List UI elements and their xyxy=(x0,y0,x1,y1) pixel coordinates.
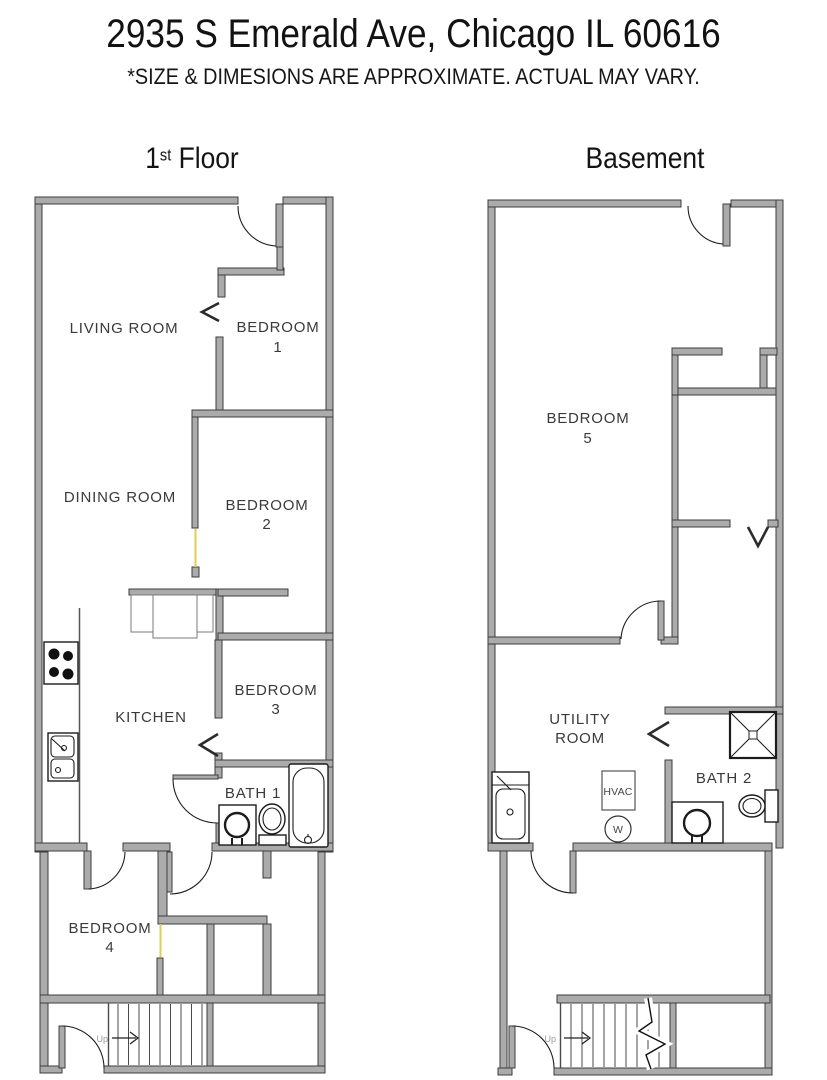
first-floor-stairs xyxy=(109,1003,203,1066)
hvac-label: HVAC xyxy=(603,786,632,798)
stove-icon xyxy=(44,642,78,684)
kitchen-label: KITCHEN xyxy=(115,709,186,726)
hall-door-arc xyxy=(170,852,212,894)
hall-door-leaf xyxy=(167,852,172,892)
bedroom1-label: BEDROOM xyxy=(236,319,319,336)
washer-icon: W xyxy=(605,816,631,842)
bath1-tub-icon xyxy=(289,764,328,847)
washer-label: W xyxy=(613,824,623,836)
bedroom4-number: 4 xyxy=(105,939,114,956)
bath2-door-icon xyxy=(649,722,669,746)
bedroom4-label: BEDROOM xyxy=(68,920,151,937)
bath1-toilet-icon xyxy=(259,804,286,845)
living-room-label: LIVING ROOM xyxy=(70,320,179,337)
basement-walls xyxy=(488,200,783,1075)
shower-icon xyxy=(730,712,776,758)
bath1-door-leaf xyxy=(173,775,218,779)
landing-door-leaf xyxy=(59,1026,65,1068)
utility-room-label: UTILITY xyxy=(549,711,610,728)
floor-plan-page: 2935 S Emerald Ave, Chicago IL 60616 *SI… xyxy=(0,0,827,1080)
bedroom3-number: 3 xyxy=(271,701,280,718)
kitchen-cabinets xyxy=(131,595,213,638)
entry-door-leaf xyxy=(276,204,283,247)
landing-door-arc xyxy=(62,1026,104,1068)
bedroom1-door-icon xyxy=(202,303,219,321)
bath1-sink-icon xyxy=(219,805,256,845)
bedroom5-label: BEDROOM xyxy=(546,410,629,427)
bedroom2-label: BEDROOM xyxy=(225,497,308,514)
bath1-label: BATH 1 xyxy=(225,785,281,802)
utility-fixtures: HVAC W xyxy=(492,771,635,843)
basement-room-labels: BEDROOM 5 UTILITY ROOM BATH 2 Up xyxy=(544,410,752,1044)
bedroom2-number: 2 xyxy=(262,516,271,533)
bedroom4-door-arc xyxy=(88,852,125,889)
basement-stairs-up-label: Up xyxy=(544,1034,556,1044)
utility-room-label-2: ROOM xyxy=(555,730,605,747)
hvac-unit: HVAC xyxy=(602,771,635,810)
bath2-sink-icon xyxy=(672,802,723,843)
basement-entry-door-arc xyxy=(688,206,723,244)
bedroom4-door-leaf xyxy=(84,851,91,889)
bedroom5-number: 5 xyxy=(583,430,592,447)
basement-doors xyxy=(509,204,768,1068)
basement-landing-door-leaf xyxy=(509,1026,515,1068)
stairs-up-label: Up xyxy=(96,1034,108,1044)
dining-room-label: DINING ROOM xyxy=(64,489,176,506)
bath2-toilet-icon xyxy=(739,790,778,822)
bath1-door-arc xyxy=(173,779,217,823)
closet-door-icon xyxy=(748,527,768,546)
kitchen-sink-icon xyxy=(48,733,78,781)
bedroom1-number: 1 xyxy=(273,339,282,356)
basement-landing-door-arc xyxy=(512,1026,554,1068)
first-floor-plan: LIVING ROOM BEDROOM 1 DINING ROOM BEDROO… xyxy=(35,197,333,1073)
entry-door-arc xyxy=(238,206,276,246)
bedroom5-door-leaf xyxy=(658,601,664,640)
utility-door-leaf xyxy=(570,851,576,893)
basement-plan: HVAC W xyxy=(488,200,783,1075)
basement-entry-door-leaf xyxy=(723,204,730,246)
floor-plan-drawing: LIVING ROOM BEDROOM 1 DINING ROOM BEDROO… xyxy=(0,0,827,1080)
bath1-fixtures xyxy=(219,764,328,847)
basement-stairs xyxy=(561,998,666,1069)
bedroom3-label: BEDROOM xyxy=(234,682,317,699)
bath2-label: BATH 2 xyxy=(696,770,752,787)
utility-door-arc xyxy=(531,851,573,893)
utility-sink-icon xyxy=(492,772,529,843)
bedroom5-door-arc xyxy=(621,601,661,639)
